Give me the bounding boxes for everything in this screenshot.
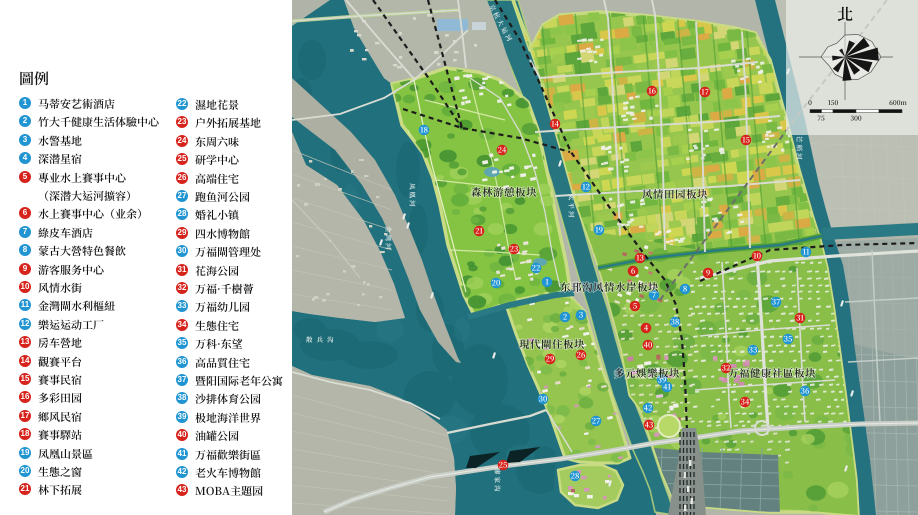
svg-text:23: 23 [510,244,519,255]
svg-text:36: 36 [801,386,810,397]
svg-text:34: 34 [741,397,750,408]
svg-text:13: 13 [636,253,644,264]
svg-text:凤凰河: 凤凰河 [408,183,417,209]
svg-text:17: 17 [701,87,709,98]
svg-text:40: 40 [644,340,653,351]
svg-text:33: 33 [749,345,758,356]
svg-text:29: 29 [546,354,555,365]
svg-text:10: 10 [753,251,761,262]
svg-text:28: 28 [571,471,580,482]
svg-text:37: 37 [772,297,781,308]
svg-text:16: 16 [648,86,656,97]
svg-text:41: 41 [663,382,671,393]
svg-text:35: 35 [784,334,793,345]
svg-text:0: 0 [808,98,812,107]
svg-text:4: 4 [644,323,649,334]
svg-text:75: 75 [817,114,825,123]
svg-text:9: 9 [706,268,710,279]
svg-text:11: 11 [802,247,810,258]
svg-text:14: 14 [551,119,560,130]
svg-text:15: 15 [742,135,750,146]
svg-text:38: 38 [671,317,680,328]
svg-text:31: 31 [796,313,804,324]
svg-text:万福健康社區板块: 万福健康社區板块 [728,366,816,381]
svg-text:5: 5 [633,301,637,312]
svg-text:太平河: 太平河 [567,194,576,220]
svg-text:27: 27 [592,416,601,427]
svg-text:8: 8 [683,284,687,295]
svg-text:150: 150 [828,98,839,107]
svg-text:风情田园板块: 风情田园板块 [642,187,708,202]
svg-text:金灣河: 金灣河 [384,226,393,252]
svg-text:22: 22 [532,263,541,274]
svg-text:20: 20 [492,278,501,289]
svg-text:多元娛樂板块: 多元娛樂板块 [614,366,680,381]
svg-text:北: 北 [837,2,853,25]
svg-text:300: 300 [850,114,862,123]
svg-text:东邗沟风情水岸板块: 东邗沟风情水岸板块 [560,280,659,295]
svg-text:600m: 600m [889,98,907,107]
svg-text:19: 19 [595,225,603,236]
svg-text:2: 2 [563,312,567,323]
svg-text:21: 21 [475,226,483,237]
svg-text:散兵沟: 散兵沟 [306,335,338,344]
svg-text:42: 42 [644,403,653,414]
svg-text:6: 6 [631,266,635,277]
svg-text:30: 30 [539,394,548,405]
svg-text:森林游憩板块: 森林游憩板块 [471,185,537,200]
svg-text:芒稻河: 芒稻河 [795,136,804,162]
svg-text:24: 24 [498,145,507,156]
svg-text:43: 43 [645,420,654,431]
svg-text:3: 3 [579,310,583,321]
svg-text:18: 18 [420,125,428,136]
svg-text:12: 12 [582,182,590,193]
svg-text:1: 1 [545,277,549,288]
svg-text:廖家沟: 廖家沟 [493,468,502,494]
svg-text:現代閘住板块: 現代閘住板块 [519,337,585,352]
